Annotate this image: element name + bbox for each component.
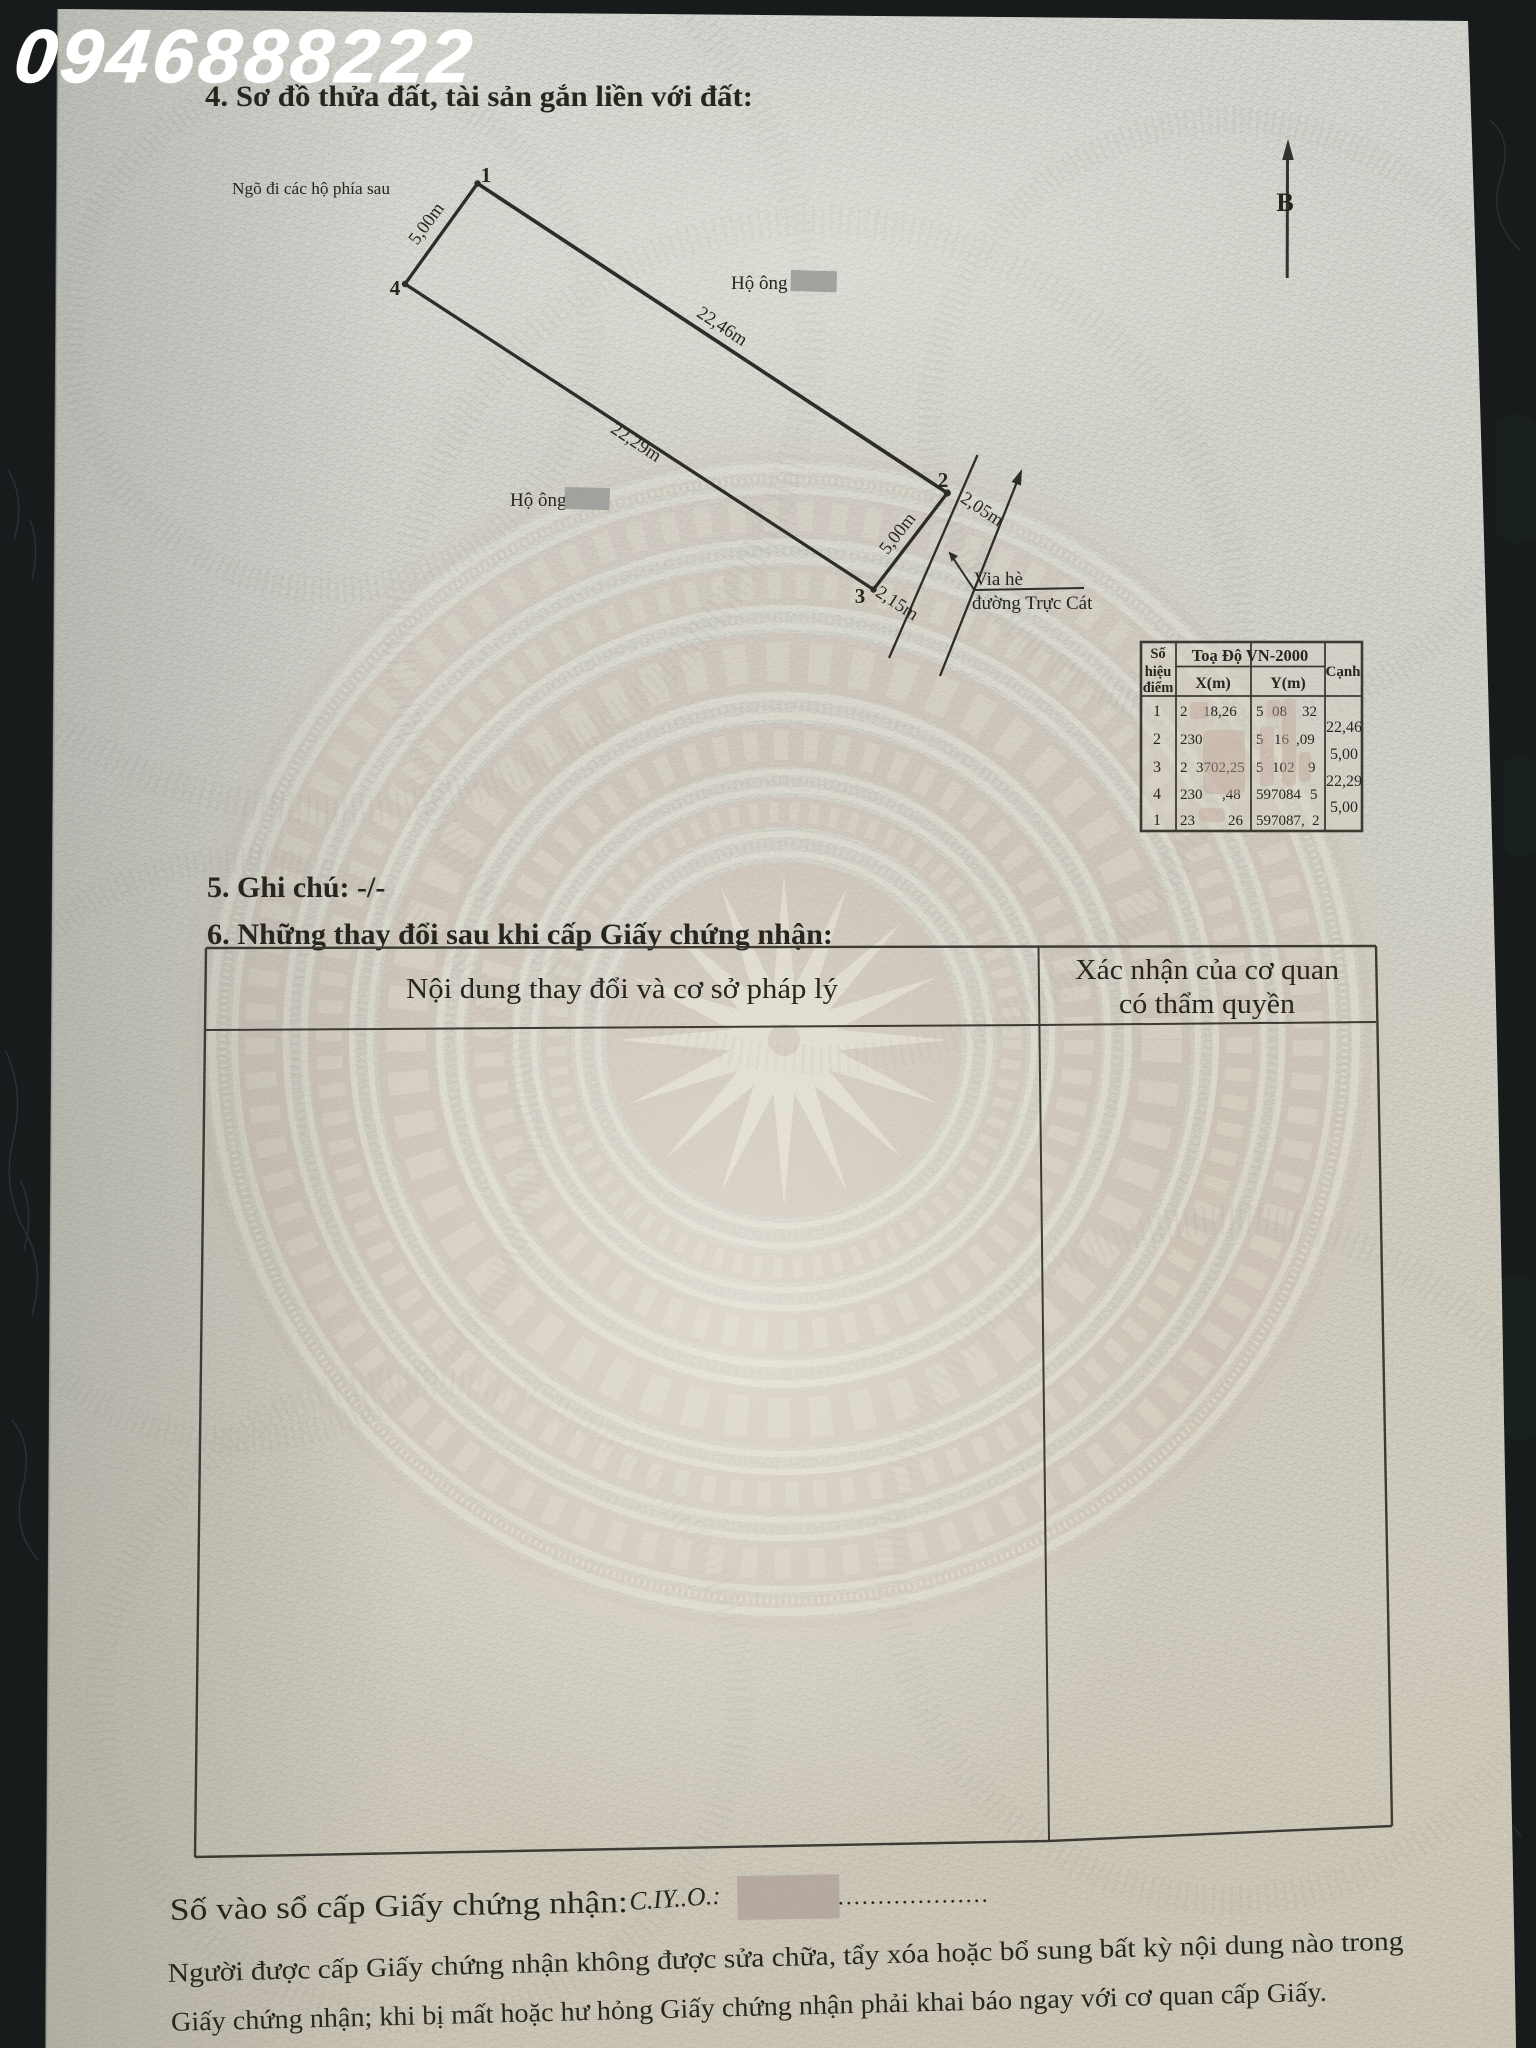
svg-text:3: 3 <box>1153 759 1161 776</box>
svg-text:1: 1 <box>481 163 492 187</box>
svg-text:Via hè: Via hè <box>974 569 1023 590</box>
svg-text:1: 1 <box>1153 812 1161 829</box>
svg-text:Nội dung thay đổi và cơ sở phá: Nội dung thay đổi và cơ sở pháp lý <box>406 974 838 1005</box>
svg-text:2: 2 <box>1153 731 1161 748</box>
svg-text:Toạ Độ VN-2000: Toạ Độ VN-2000 <box>1192 646 1308 665</box>
svg-text:5,00: 5,00 <box>1330 746 1358 763</box>
svg-text:4: 4 <box>390 276 401 300</box>
svg-text:,09: ,09 <box>1296 732 1315 748</box>
svg-text:23: 23 <box>1180 813 1195 829</box>
svg-text:hiệu: hiệu <box>1145 664 1172 680</box>
svg-text:1: 1 <box>1153 703 1161 720</box>
svg-text:đường Trực Cát: đường Trực Cát <box>972 593 1093 614</box>
svg-text:Hộ ông: Hộ ông <box>731 273 788 294</box>
svg-text:điểm: điểm <box>1143 680 1174 696</box>
svg-text:2: 2 <box>1180 760 1188 776</box>
svg-text:597084: 597084 <box>1256 787 1302 803</box>
svg-text:2: 2 <box>1180 704 1188 720</box>
svg-text:có thẩm quyền: có thẩm quyền <box>1119 989 1295 1020</box>
svg-text:Y(m): Y(m) <box>1270 675 1306 692</box>
svg-text:230: 230 <box>1180 732 1203 748</box>
svg-text:X(m): X(m) <box>1195 675 1231 692</box>
svg-text:5. Ghi chú: -/-: 5. Ghi chú: -/- <box>207 871 385 904</box>
svg-text:Xác nhận của cơ quan: Xác nhận của cơ quan <box>1075 955 1339 986</box>
svg-text:0946888222: 0946888222 <box>11 14 480 98</box>
svg-text:5,00: 5,00 <box>1330 799 1358 816</box>
svg-text:Cạnh: Cạnh <box>1325 664 1361 680</box>
svg-text:22,46: 22,46 <box>1326 719 1362 736</box>
svg-text:B: B <box>1276 188 1293 217</box>
svg-text:230: 230 <box>1180 787 1203 803</box>
svg-text:18,26: 18,26 <box>1203 704 1237 720</box>
svg-text:5: 5 <box>1310 787 1318 803</box>
svg-text:26: 26 <box>1228 813 1244 829</box>
svg-text:32: 32 <box>1302 704 1317 720</box>
svg-text:Ngõ đi các hộ phía sau: Ngõ đi các hộ phía sau <box>232 179 390 198</box>
svg-text:5: 5 <box>1256 704 1264 720</box>
svg-text:22,29: 22,29 <box>1326 773 1362 790</box>
svg-text:2: 2 <box>938 468 949 492</box>
svg-text:...................: ................... <box>837 1882 989 1911</box>
svg-text:4: 4 <box>1153 786 1161 803</box>
svg-text:Số: Số <box>1150 646 1166 662</box>
svg-text:Hộ ông: Hộ ông <box>510 490 567 511</box>
svg-text:3: 3 <box>855 584 866 608</box>
svg-text:597087,: 597087, <box>1256 813 1305 829</box>
svg-text:2: 2 <box>1312 813 1320 829</box>
